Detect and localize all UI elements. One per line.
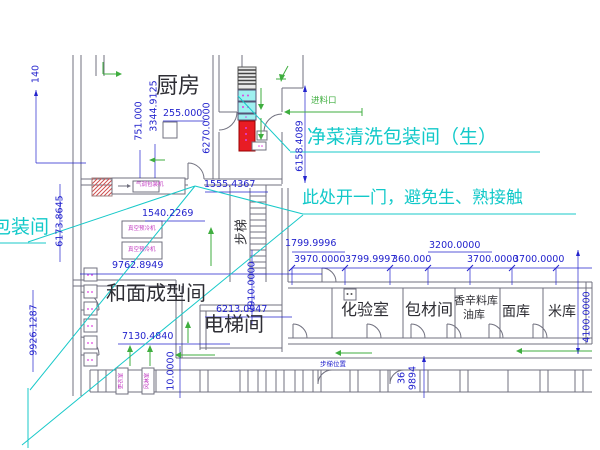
locker-column (84, 268, 97, 366)
dim-6270: 6270.0000 (202, 102, 212, 153)
dim-3200: 3200.0000 (429, 241, 480, 251)
room-lab: 化验室 (341, 302, 389, 318)
label-vacuum-cooler-2: 真空预冷机 (128, 248, 156, 254)
room-dough-forming: 和面成型间 (106, 283, 206, 303)
dim-7130: 7130.4840 (122, 332, 173, 342)
room-elevator: 电梯间 (204, 314, 264, 334)
dim-360: 360.000 (392, 255, 431, 265)
dim-255: 255.000 (163, 109, 202, 119)
dim-140: 140 (31, 65, 41, 83)
note-clean-veg-room: 净菜清洗包装间（生） (307, 128, 497, 147)
dim-9894: 9894 (408, 366, 418, 390)
room-spice-store-line2: 油库 (463, 309, 485, 320)
dim-6173: 6173.8645 (55, 195, 65, 246)
floor-plan-canvas: 包装间 净菜清洗包装间（生） 此处开一门，避免生、熟接触 厨房 和面成型间 电梯… (0, 0, 600, 450)
dim-3799: 3799.9997 (345, 255, 396, 265)
hatched-pad (92, 178, 112, 196)
note-packaging-room: 包装间 (0, 218, 49, 237)
note-open-door-here: 此处开一门，避免生、熟接触 (302, 190, 523, 207)
room-kitchen: 厨房 (156, 76, 200, 98)
dim-6158: 6158.4089 (295, 120, 305, 171)
washer-block-3 (238, 114, 256, 120)
dim-3700-b: 3700.0000 (513, 255, 564, 265)
dim-9762: 9762.8949 (112, 261, 163, 271)
label-position-note: 步梯位置 (320, 361, 346, 368)
dim-3344: 3344.9125 (149, 80, 159, 131)
equipment-shapes (84, 67, 356, 394)
room-flour-store: 面库 (502, 305, 530, 319)
dim-6213: 6213.0947 (216, 305, 267, 315)
label-air-shower: 风淋室 (145, 373, 151, 390)
dim-10: 10.0000 (166, 351, 176, 390)
dim-1799: 1799.9996 (285, 239, 336, 249)
dim-751: 751.000 (134, 101, 144, 140)
lab-fixture (344, 289, 356, 300)
dim-1555: 1555.4367 (204, 180, 255, 190)
dim-9926: 9926.1287 (29, 304, 39, 355)
dim-36: 36 (397, 372, 407, 384)
dim-3970: 3970.0000 (294, 255, 345, 265)
floor-plan-drawing (0, 0, 600, 450)
room-spice-store-line1: 香辛料库 (454, 295, 498, 306)
washer-block-2 (238, 102, 256, 113)
room-packaging-material: 包材间 (405, 302, 453, 318)
label-changing-room: 更衣室 (119, 373, 125, 390)
label-vacuum-cooler-1: 真空预冷机 (128, 227, 156, 233)
dim-1540: 1540.2269 (142, 209, 193, 219)
dim-7910: 7910.0000 (247, 261, 257, 312)
dim-3700-a: 3700.0000 (467, 255, 518, 265)
dim-4100: 4100.0000 (582, 291, 592, 342)
room-rice-store: 米库 (548, 305, 576, 319)
label-feed-inlet: 进料口 (311, 97, 337, 106)
room-stairs: 步梯 (236, 219, 249, 245)
label-map-packer: 气调包装机 (136, 183, 164, 189)
